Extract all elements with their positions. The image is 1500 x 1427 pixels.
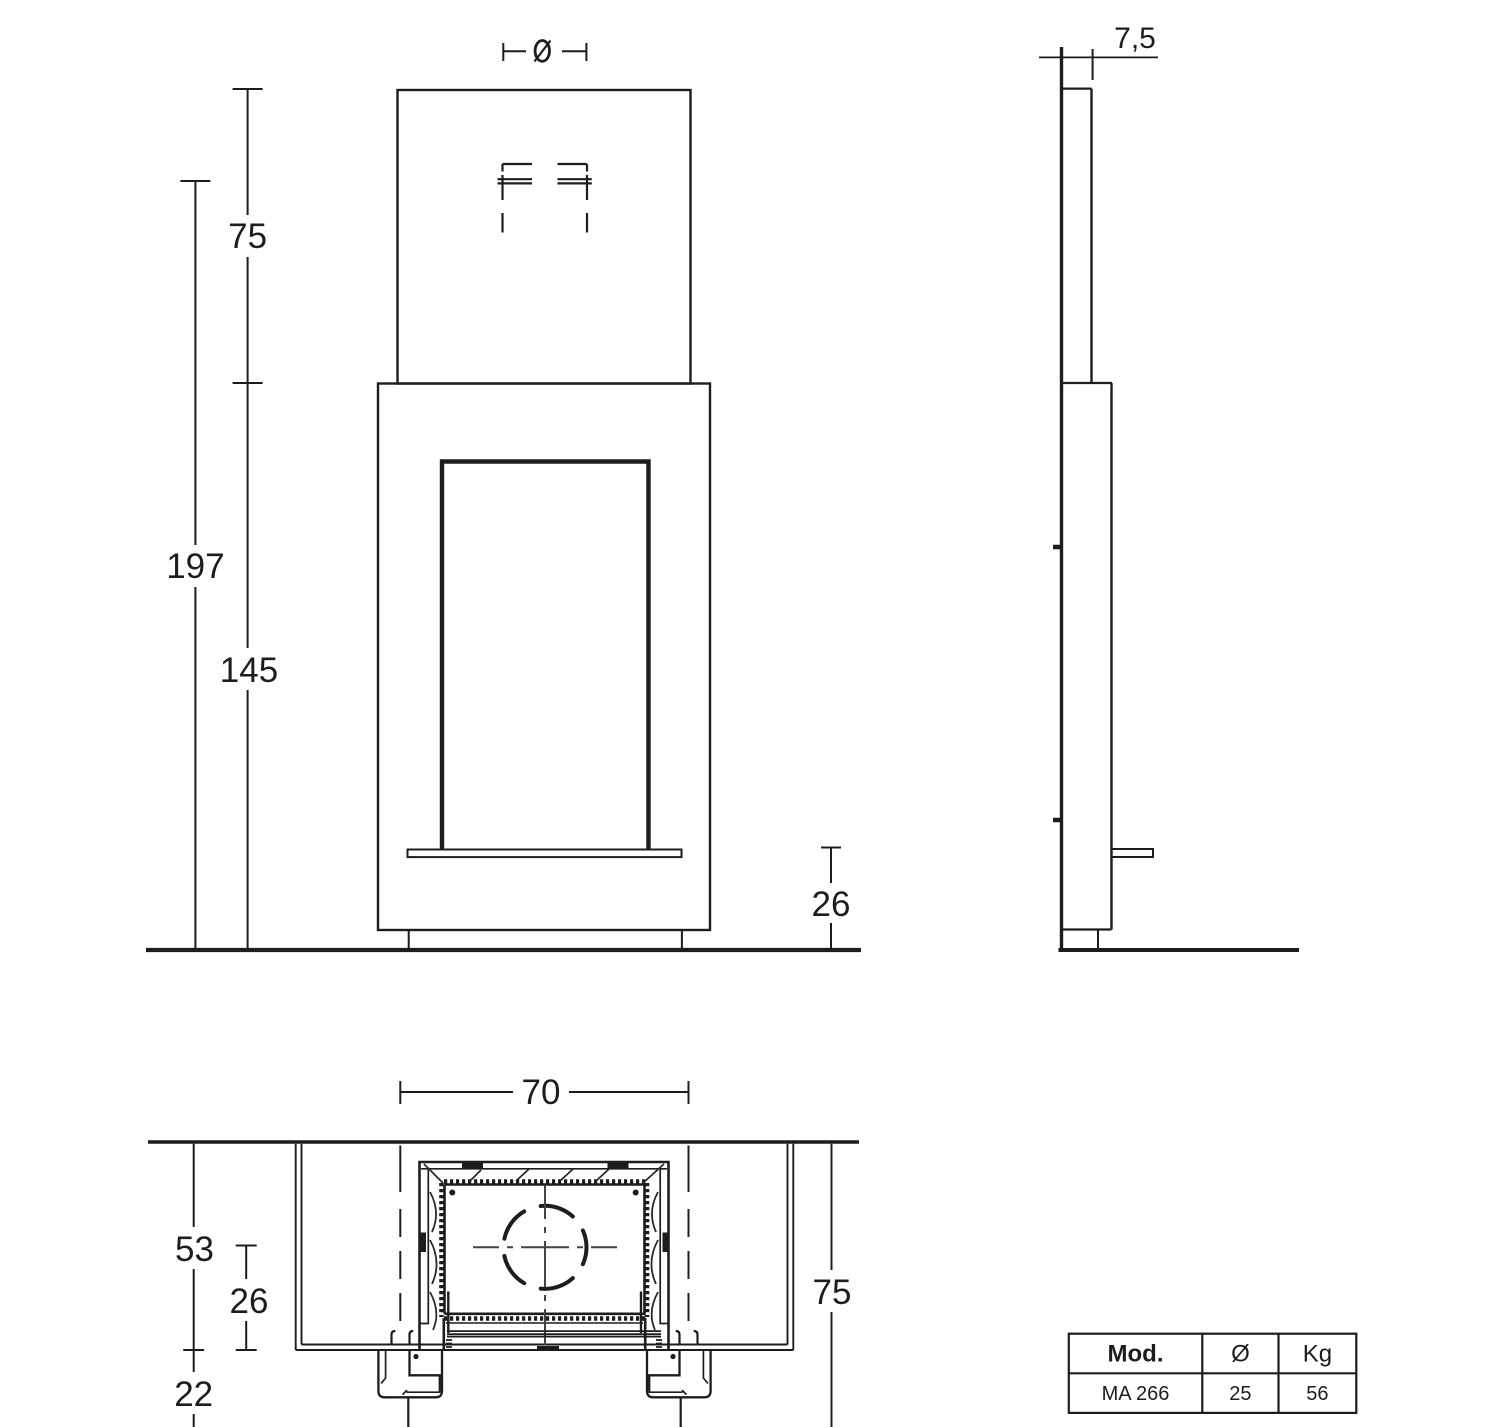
svg-text:Ø: Ø: [1231, 1341, 1250, 1368]
svg-text:7,5: 7,5: [1114, 22, 1156, 55]
svg-text:53: 53: [175, 1230, 214, 1269]
svg-text:75: 75: [813, 1273, 852, 1312]
svg-text:197: 197: [166, 547, 224, 586]
svg-text:26: 26: [230, 1282, 269, 1321]
svg-text:Mod.: Mod.: [1108, 1341, 1164, 1368]
svg-text:25: 25: [1229, 1383, 1251, 1405]
svg-text:26: 26: [812, 885, 851, 924]
svg-text:145: 145: [220, 651, 278, 690]
svg-text:70: 70: [522, 1073, 561, 1112]
svg-text:Kg: Kg: [1303, 1341, 1332, 1368]
svg-text:75: 75: [228, 217, 267, 256]
svg-text:MA 266: MA 266: [1102, 1383, 1170, 1405]
svg-text:22: 22: [174, 1375, 213, 1414]
svg-text:56: 56: [1306, 1383, 1328, 1405]
